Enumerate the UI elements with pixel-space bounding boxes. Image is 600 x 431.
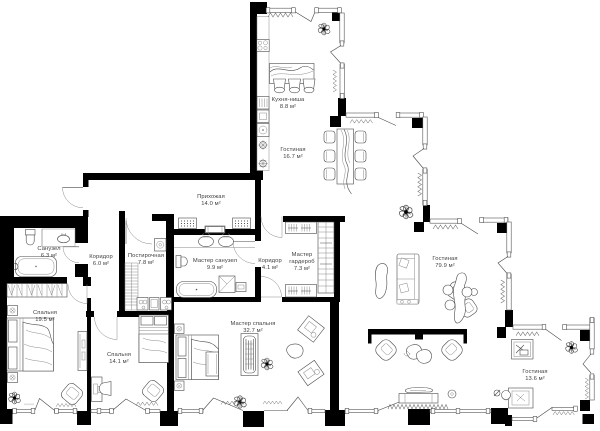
svg-text:8.8 м²: 8.8 м²: [280, 104, 296, 110]
svg-text:6.3 м²: 6.3 м²: [41, 253, 57, 259]
svg-text:Кухня-ниша: Кухня-ниша: [272, 97, 305, 103]
svg-text:Постирочная: Постирочная: [128, 253, 164, 259]
svg-text:19.5 м²: 19.5 м²: [35, 317, 55, 323]
svg-text:Спальня: Спальня: [107, 352, 131, 358]
svg-text:79.9 м²: 79.9 м²: [435, 263, 455, 269]
svg-text:Гостиная: Гостиная: [432, 256, 457, 262]
svg-text:14.0 м²: 14.0 м²: [201, 201, 221, 207]
svg-text:Мастер: Мастер: [292, 252, 313, 258]
svg-text:Коридор: Коридор: [89, 254, 113, 260]
svg-text:Спальня: Спальня: [33, 310, 57, 316]
svg-text:Санузел: Санузел: [37, 246, 60, 252]
svg-text:гардероб: гардероб: [289, 259, 315, 265]
svg-text:Гостиная: Гостиная: [280, 147, 305, 153]
svg-text:Гостиная: Гостиная: [522, 369, 547, 375]
svg-text:Мастер спальня: Мастер спальня: [230, 321, 275, 327]
svg-text:7.8 м²: 7.8 м²: [138, 260, 154, 266]
svg-text:Коридор: Коридор: [258, 258, 282, 264]
svg-text:Мастер санузел: Мастер санузел: [193, 258, 237, 264]
svg-text:7.3 м²: 7.3 м²: [294, 266, 310, 272]
svg-text:16.7 м²: 16.7 м²: [283, 154, 303, 160]
svg-text:13.6 м²: 13.6 м²: [525, 376, 545, 382]
svg-text:6.0 м²: 6.0 м²: [93, 261, 109, 267]
svg-text:32.7 м²: 32.7 м²: [243, 328, 263, 334]
svg-text:14.1 м²: 14.1 м²: [109, 359, 129, 365]
svg-text:4.1 м²: 4.1 м²: [262, 265, 278, 271]
svg-text:Прихожая: Прихожая: [197, 194, 225, 200]
svg-text:9.9 м²: 9.9 м²: [207, 265, 223, 271]
